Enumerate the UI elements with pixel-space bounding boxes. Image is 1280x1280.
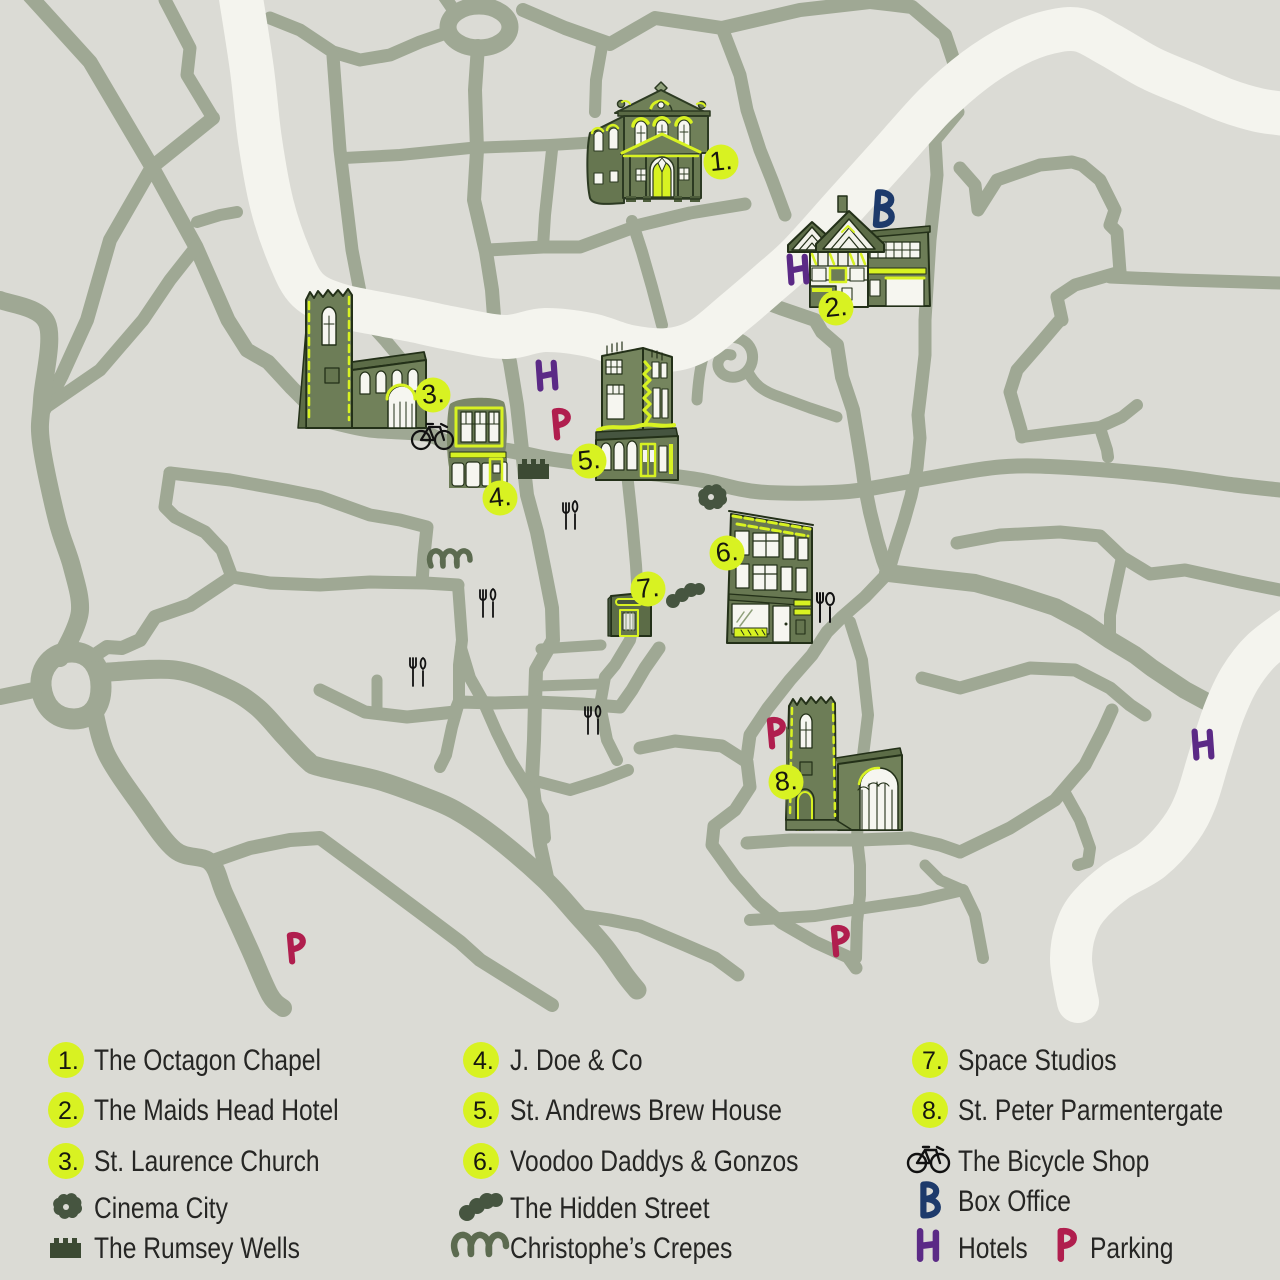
svg-text:Hotels: Hotels: [958, 1231, 1028, 1265]
svg-text:8.: 8.: [773, 765, 799, 797]
svg-text:Christophe’s Crepes: Christophe’s Crepes: [510, 1231, 732, 1265]
svg-text:The Bicycle Shop: The Bicycle Shop: [958, 1144, 1149, 1178]
svg-text:Cinema City: Cinema City: [94, 1191, 228, 1225]
svg-text:7.: 7.: [922, 1047, 943, 1075]
svg-text:Space Studios: Space Studios: [958, 1043, 1117, 1077]
svg-text:2.: 2.: [823, 291, 849, 323]
svg-text:1.: 1.: [708, 145, 734, 177]
svg-text:4.: 4.: [487, 481, 513, 513]
svg-text:5.: 5.: [576, 444, 602, 476]
svg-text:St. Peter Parmentergate: St. Peter Parmentergate: [958, 1093, 1223, 1127]
svg-text:3.: 3.: [420, 378, 446, 410]
svg-text:4.: 4.: [473, 1047, 494, 1075]
svg-text:Box Office: Box Office: [958, 1184, 1071, 1218]
svg-text:St. Laurence Church: St. Laurence Church: [94, 1144, 320, 1178]
svg-text:5.: 5.: [473, 1097, 494, 1125]
svg-text:6.: 6.: [714, 536, 740, 568]
svg-text:The Octagon Chapel: The Octagon Chapel: [94, 1043, 321, 1077]
svg-text:The Hidden Street: The Hidden Street: [510, 1191, 710, 1225]
svg-text:7.: 7.: [635, 572, 661, 604]
svg-text:3.: 3.: [58, 1148, 79, 1176]
svg-text:Voodoo Daddys & Gonzos: Voodoo Daddys & Gonzos: [510, 1144, 798, 1178]
svg-text:8.: 8.: [922, 1097, 943, 1125]
svg-text:2.: 2.: [58, 1097, 79, 1125]
svg-text:1.: 1.: [58, 1047, 79, 1075]
svg-text:Parking: Parking: [1090, 1231, 1173, 1265]
svg-text:The Rumsey Wells: The Rumsey Wells: [94, 1231, 300, 1265]
svg-text:6.: 6.: [473, 1148, 494, 1176]
svg-text:The Maids Head Hotel: The Maids Head Hotel: [94, 1093, 339, 1127]
svg-text:J. Doe & Co: J. Doe & Co: [510, 1043, 643, 1077]
svg-text:St. Andrews Brew House: St. Andrews Brew House: [510, 1093, 782, 1127]
